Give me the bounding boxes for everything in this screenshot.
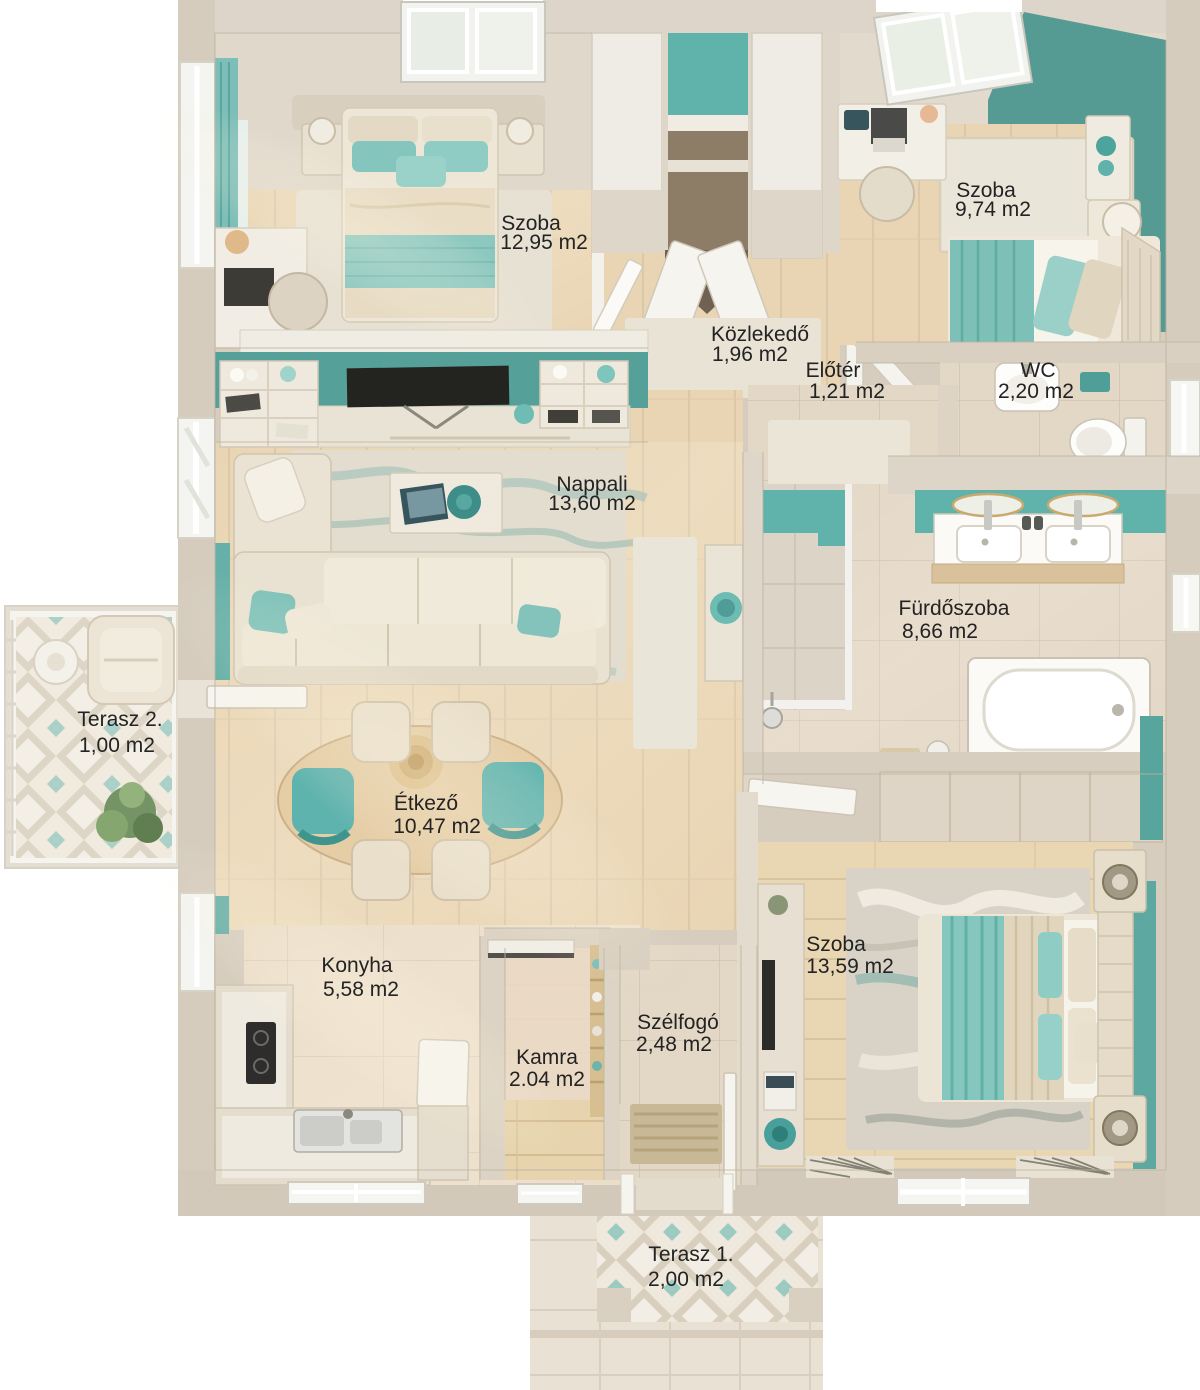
svg-text:5,58 m2: 5,58 m2 [323,978,399,1001]
svg-text:Konyha: Konyha [321,954,393,977]
svg-text:2,00 m2: 2,00 m2 [648,1268,724,1291]
svg-text:13,60 m2: 13,60 m2 [548,492,636,515]
svg-text:WC: WC [1021,359,1056,382]
svg-text:Kamra: Kamra [516,1046,578,1069]
svg-text:12,95 m2: 12,95 m2 [500,231,588,254]
svg-text:Szoba: Szoba [806,933,866,956]
svg-text:Étkező: Étkező [394,792,458,815]
svg-text:Terasz 1.: Terasz 1. [648,1243,733,1266]
svg-text:Szélfogó: Szélfogó [637,1011,719,1034]
svg-text:8,66 m2: 8,66 m2 [902,620,978,643]
svg-text:1,21 m2: 1,21 m2 [809,380,885,403]
svg-text:2,48 m2: 2,48 m2 [636,1033,712,1056]
svg-text:Előtér: Előtér [806,359,861,382]
svg-text:9,74 m2: 9,74 m2 [955,198,1031,221]
svg-text:1,00 m2: 1,00 m2 [79,734,155,757]
svg-text:1,96 m2: 1,96 m2 [712,343,788,366]
svg-text:Terasz 2.: Terasz 2. [77,708,162,731]
svg-text:10,47 m2: 10,47 m2 [393,815,481,838]
svg-text:13,59 m2: 13,59 m2 [806,955,894,978]
svg-text:2.04 m2: 2.04 m2 [509,1068,585,1091]
svg-text:2,20 m2: 2,20 m2 [998,380,1074,403]
svg-text:Fürdőszoba: Fürdőszoba [899,597,1010,620]
